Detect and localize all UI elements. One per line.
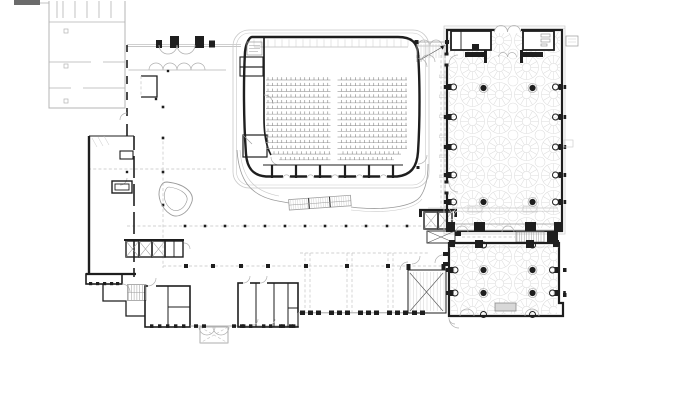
room-cluster-b	[238, 283, 298, 327]
facade-post	[308, 311, 313, 316]
column-dot	[155, 98, 157, 100]
facade-post	[420, 311, 425, 316]
wall-pilaster	[559, 172, 563, 178]
outer-nub	[444, 145, 447, 149]
facade-post	[194, 324, 198, 328]
outer-nub	[564, 200, 567, 204]
door-leaf	[209, 41, 215, 48]
column-dot	[480, 199, 486, 205]
column-dot	[264, 225, 267, 228]
column-dot	[480, 290, 486, 296]
stage-platform	[495, 303, 516, 311]
stage-divider	[295, 165, 297, 178]
facade-post	[269, 324, 272, 328]
facade-post	[374, 311, 379, 316]
column-dot	[529, 199, 535, 205]
elevator-x	[424, 212, 438, 229]
facade-post	[150, 324, 153, 328]
floor-plan-drawing	[0, 0, 693, 400]
column-dot	[529, 85, 535, 91]
column-dot	[345, 225, 348, 228]
door-leaf	[170, 36, 179, 48]
facade-post	[329, 311, 334, 316]
facade-post	[387, 311, 392, 316]
southwest-rooms	[86, 274, 428, 343]
wall-pilaster	[559, 199, 563, 205]
facade-post	[89, 282, 92, 285]
facade-post	[96, 282, 99, 285]
colonnade-tick	[439, 135, 446, 138]
outer-nub	[444, 115, 447, 119]
door-swing-arc	[149, 63, 205, 70]
door-swing-arc	[449, 318, 459, 328]
facade-post	[412, 311, 417, 316]
facade-post	[166, 324, 169, 328]
elevator-x	[126, 241, 139, 257]
column-dot	[345, 264, 349, 268]
column-dot	[239, 264, 243, 268]
lower-hall	[435, 240, 567, 328]
column-dot	[126, 171, 128, 173]
stage-divider	[319, 165, 321, 178]
outer-nub	[444, 200, 447, 204]
column-dot	[284, 225, 287, 228]
facade-post	[403, 311, 408, 316]
colonnade-tick	[439, 95, 446, 98]
facade-post	[366, 311, 371, 316]
column-dot	[304, 225, 307, 228]
stage-divider	[368, 165, 370, 178]
foyer-objects	[124, 182, 457, 257]
facade-post	[158, 324, 161, 328]
wall-pilaster	[559, 84, 563, 90]
steps-bar	[289, 195, 352, 210]
annex-building	[14, 0, 125, 108]
column-dot	[304, 264, 308, 268]
column-dot	[386, 225, 389, 228]
outer-nub	[444, 173, 447, 177]
column-dot	[162, 137, 165, 140]
wall-pilaster	[559, 114, 563, 120]
facade-post	[182, 324, 185, 328]
facade-post	[316, 311, 321, 316]
west-gallery	[86, 136, 136, 277]
column-dot	[184, 264, 188, 268]
upper-hall	[444, 26, 566, 235]
elevator-x	[139, 241, 152, 257]
facade-post	[292, 324, 295, 328]
site-hatch-block	[14, 0, 40, 5]
facade-post	[116, 282, 119, 285]
wall-pilaster	[559, 144, 563, 150]
auditorium-main-wall	[244, 37, 420, 177]
outer-nub	[564, 115, 567, 119]
vestibule-room	[451, 31, 491, 50]
site-misc	[564, 36, 578, 147]
column-dot	[529, 267, 535, 273]
column-dot	[162, 106, 165, 109]
facade-post	[337, 311, 342, 316]
north-entrance	[127, 36, 447, 97]
facade-post	[358, 311, 363, 316]
auditorium-outer-shell	[233, 30, 429, 188]
elevator-boxes-west	[126, 241, 165, 257]
column-dot	[224, 225, 227, 228]
facade-post	[174, 324, 177, 328]
gallery-ticks	[254, 40, 408, 48]
seat-rows	[266, 77, 407, 160]
auditorium	[233, 30, 449, 212]
door-swing-arc	[199, 327, 229, 335]
outer-nub	[446, 268, 449, 272]
facade-post	[279, 324, 282, 328]
stage-divider	[344, 165, 346, 178]
column-dot	[244, 225, 247, 228]
column-dot	[266, 264, 270, 268]
column-dot	[167, 70, 169, 72]
facade-post	[345, 311, 350, 316]
stage-divider	[392, 165, 394, 178]
curtain-posts	[300, 311, 425, 316]
door-leaf	[195, 36, 204, 48]
colonnade-tick	[439, 155, 446, 158]
facade-post	[249, 324, 252, 328]
column-dot	[204, 225, 207, 228]
floor-plan-canvas	[0, 0, 693, 400]
facade-post	[232, 324, 236, 328]
column-dot	[480, 267, 486, 273]
facade-post	[262, 324, 265, 328]
facade-post	[242, 324, 245, 328]
colonnade-tick	[439, 75, 446, 78]
rosette-floor-upper	[449, 32, 560, 228]
column-dot	[529, 290, 535, 296]
facade-post	[103, 282, 106, 285]
apron-curve	[351, 164, 428, 209]
stair-southeast	[400, 256, 446, 313]
column-dot	[324, 225, 327, 228]
door-swing-arc	[435, 255, 443, 263]
column-dot	[162, 171, 165, 174]
column-dot	[365, 225, 368, 228]
facade-post	[395, 311, 400, 316]
facade-post	[202, 324, 206, 328]
outer-nub	[564, 173, 567, 177]
door-swing-arc	[243, 276, 267, 283]
column-dot	[480, 85, 486, 91]
facade-post	[300, 311, 305, 316]
column-dot	[386, 264, 390, 268]
column-dot	[184, 225, 187, 228]
facade-post	[110, 282, 113, 285]
door-swing-arc	[122, 284, 130, 292]
outer-nub	[446, 291, 449, 295]
outer-nub	[564, 85, 567, 89]
stage-divider	[271, 165, 273, 178]
elevator-x	[152, 241, 165, 257]
column-dot	[406, 225, 409, 228]
column-dot	[211, 264, 215, 268]
outer-nub	[444, 85, 447, 89]
